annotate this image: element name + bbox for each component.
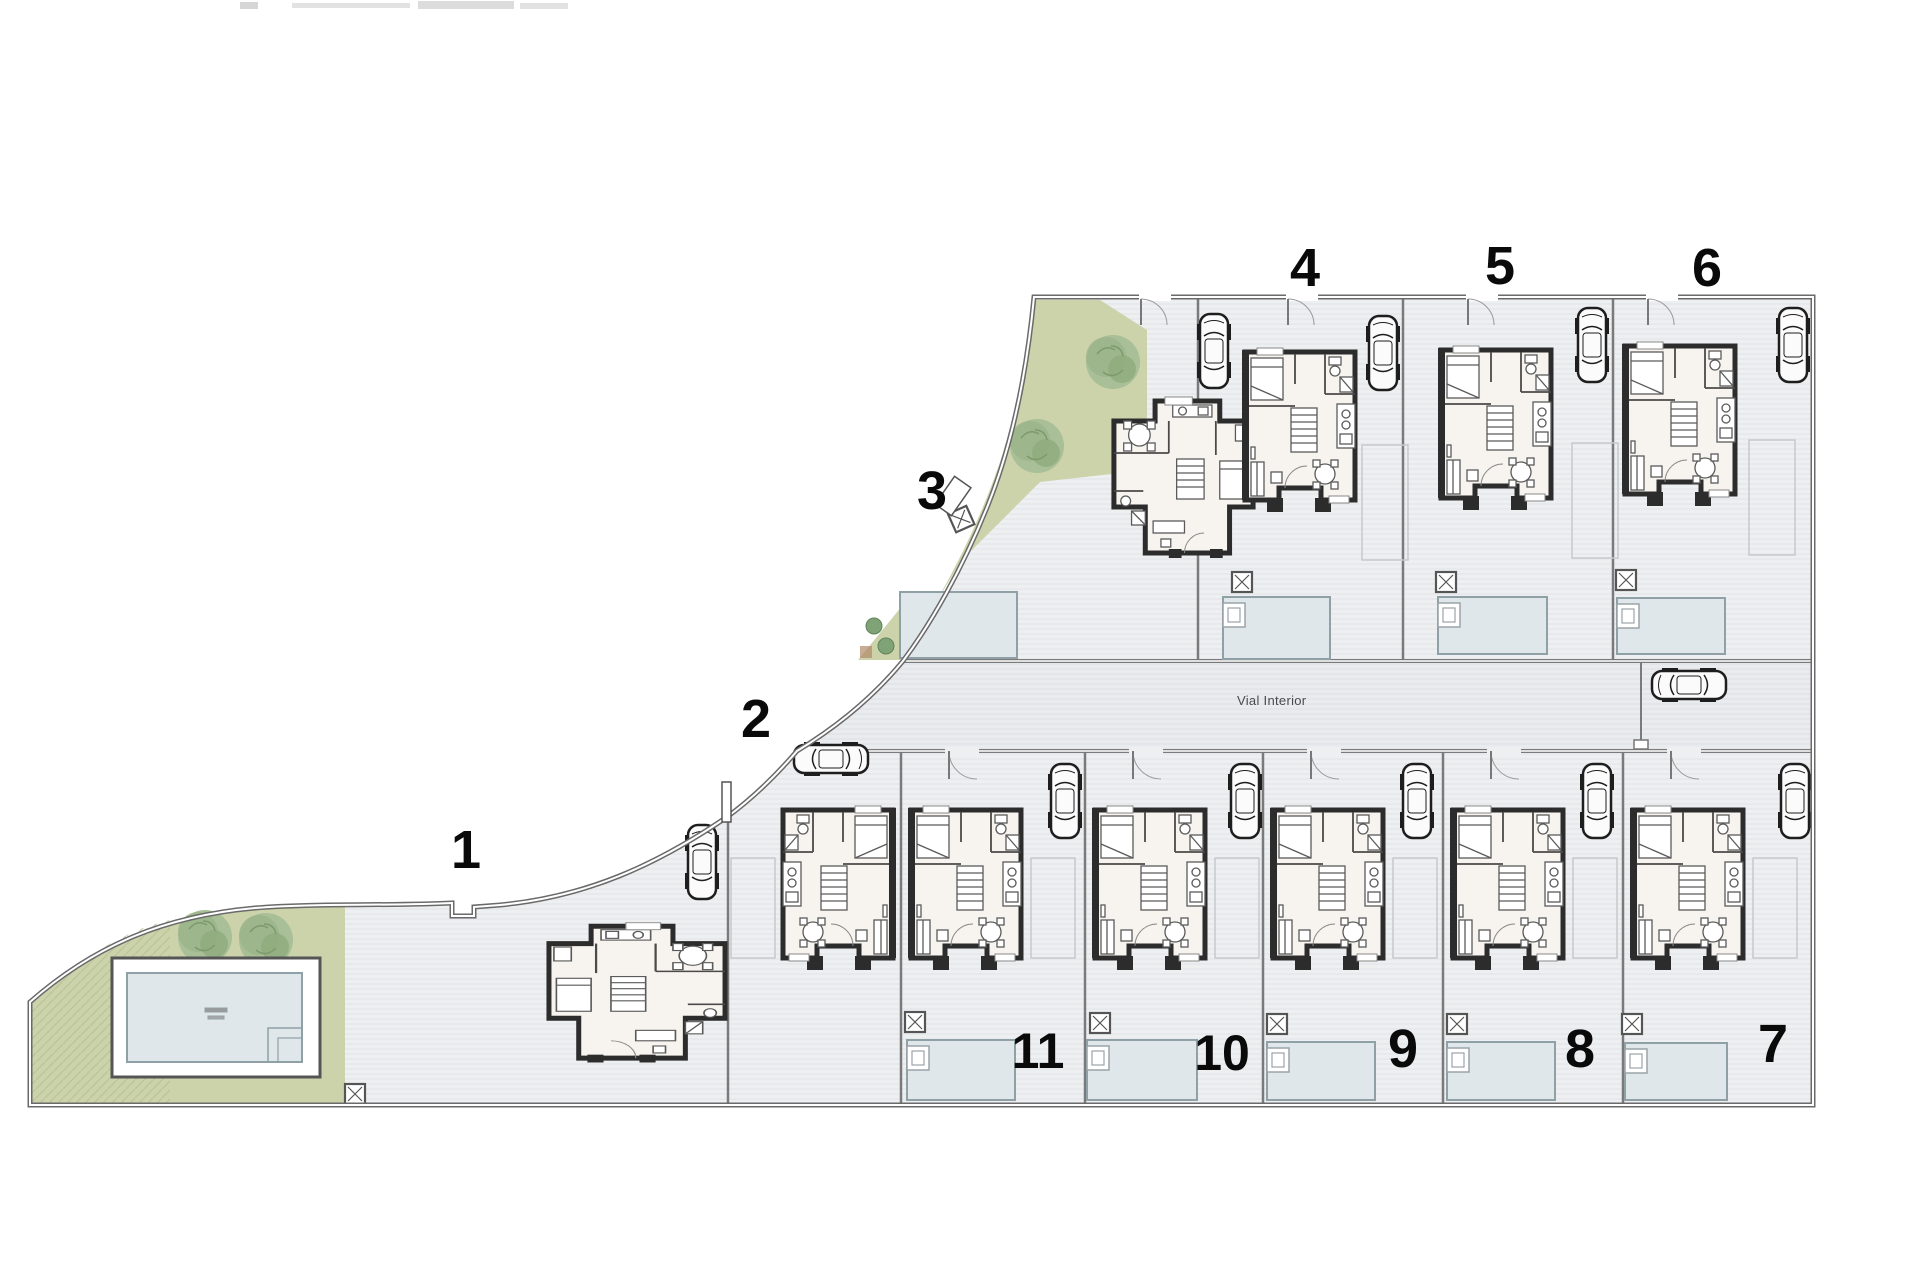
plot-label-9: 9 <box>1388 1019 1418 1079</box>
house-plot7 <box>1630 806 1743 970</box>
house-plot5 <box>1438 346 1551 510</box>
car-icon <box>1776 308 1810 382</box>
marker-x-icon <box>1447 1014 1467 1034</box>
marker-x-icon <box>1232 572 1252 592</box>
plot-label-7: 7 <box>1758 1014 1788 1074</box>
mulch-patch <box>860 646 872 658</box>
house-plot11 <box>908 806 1021 970</box>
car-icon <box>1366 316 1400 390</box>
car-icon <box>1400 764 1434 838</box>
marker-x-icon <box>1436 572 1456 592</box>
car-icon <box>1580 764 1614 838</box>
house-plot4 <box>1242 348 1355 512</box>
pool-step <box>1625 1049 1647 1073</box>
pool-step <box>1267 1048 1289 1072</box>
house-plot2 <box>783 806 896 970</box>
marker-x-icon <box>1267 1014 1287 1034</box>
car-icon <box>1048 764 1082 838</box>
bush-icon <box>878 638 894 654</box>
pool-step <box>1438 603 1460 627</box>
tree-icon <box>1086 335 1140 389</box>
plot-label-5: 5 <box>1485 236 1515 296</box>
pool-dimension-text-illegible <box>208 1016 224 1019</box>
plot-label-6: 6 <box>1692 238 1722 298</box>
road-label: Vial Interior <box>1237 693 1307 708</box>
car-icon <box>1197 314 1231 388</box>
pool-dimension-text-illegible <box>205 1008 227 1012</box>
pool-step <box>1447 1048 1469 1072</box>
pool-step <box>1223 603 1245 627</box>
marker-x-icon <box>1622 1014 1642 1034</box>
marker-x-icon <box>1090 1013 1110 1033</box>
plot-label-3: 3 <box>917 461 947 521</box>
car-icon <box>1575 308 1609 382</box>
plot-label-11: 11 <box>1012 1023 1065 1079</box>
cropped-title-fragment <box>240 1 568 9</box>
marker-x-icon <box>905 1012 925 1032</box>
house-plot10 <box>1092 806 1205 970</box>
pool-step <box>1087 1046 1109 1070</box>
house-plot9 <box>1270 806 1383 970</box>
house-plot6 <box>1622 342 1735 506</box>
plot-label-2: 2 <box>741 689 771 749</box>
pool-plot3 <box>900 592 1017 658</box>
house-plot8 <box>1450 806 1563 970</box>
marker-x-icon <box>345 1084 365 1104</box>
gate-icon <box>722 782 731 822</box>
car-icon <box>1652 668 1726 702</box>
pool-step <box>1617 604 1639 628</box>
car-icon <box>1778 764 1812 838</box>
plot-label-1: 1 <box>451 820 481 880</box>
marker-x-icon <box>1616 570 1636 590</box>
plot-label-4: 4 <box>1290 238 1320 298</box>
car-icon <box>1228 764 1262 838</box>
pool-plot1 <box>112 958 320 1077</box>
bush-icon <box>866 618 882 634</box>
pool-step <box>907 1046 929 1070</box>
site-plan-drawing: 1 2 3 4 5 6 7 8 9 10 11 Vial Interior <box>0 0 1920 1280</box>
tree-icon <box>1010 419 1064 473</box>
plot-label-8: 8 <box>1565 1019 1595 1079</box>
site-plan-page: 1 2 3 4 5 6 7 8 9 10 11 Vial Interior <box>0 0 1920 1280</box>
plot-label-10: 10 <box>1194 1025 1250 1081</box>
